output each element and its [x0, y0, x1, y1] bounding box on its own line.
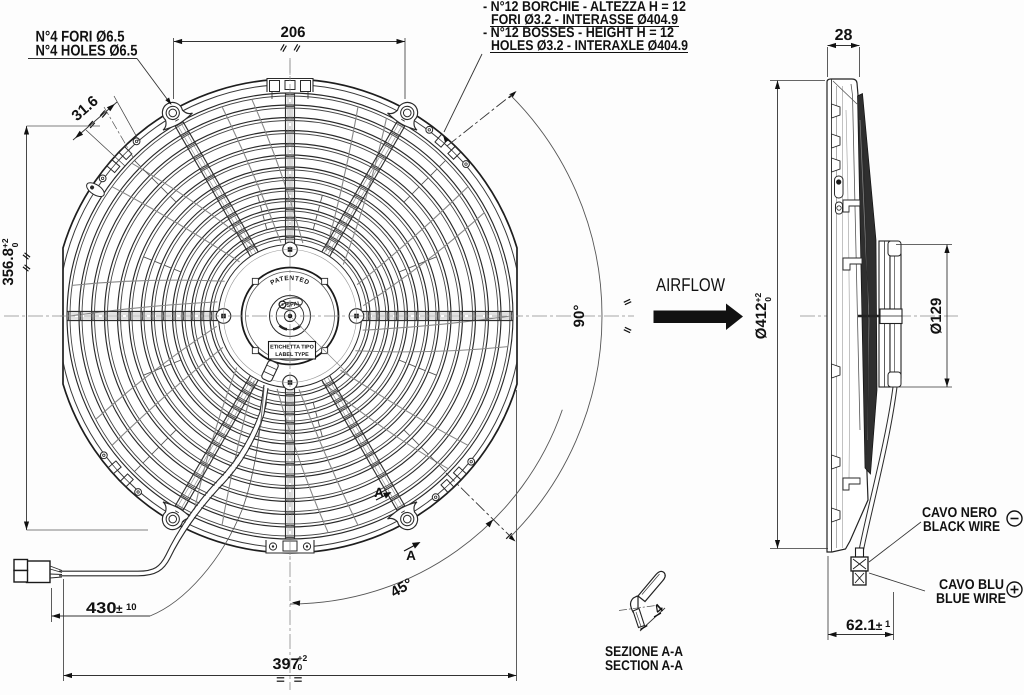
svg-text:206: 206 — [280, 24, 305, 41]
svg-text:BLACK WIRE: BLACK WIRE — [923, 519, 1000, 535]
svg-text:90°: 90° — [571, 305, 588, 328]
svg-text:AIRFLOW: AIRFLOW — [656, 274, 725, 295]
svg-text:LABEL TYPE: LABEL TYPE — [275, 352, 309, 358]
svg-text:10: 10 — [126, 602, 137, 613]
svg-text:1: 1 — [885, 619, 891, 630]
svg-text:0: 0 — [298, 662, 303, 672]
svg-text:BLUE WIRE: BLUE WIRE — [936, 591, 1006, 607]
svg-text:±: ± — [876, 619, 883, 633]
svg-text:A: A — [406, 548, 416, 563]
svg-text:62.1: 62.1 — [846, 617, 876, 634]
svg-text:397: 397 — [273, 656, 300, 673]
svg-text:28: 28 — [835, 27, 853, 44]
svg-text:N°4 HOLES Ø6.5: N°4 HOLES Ø6.5 — [36, 43, 138, 60]
svg-text:HOLES Ø3.2 - INTERAXLE Ø404.9: HOLES Ø3.2 - INTERAXLE Ø404.9 — [491, 38, 688, 54]
svg-text:Ø129: Ø129 — [928, 298, 945, 335]
svg-text:±: ± — [116, 602, 123, 616]
svg-text:430: 430 — [86, 600, 117, 617]
svg-text:A: A — [374, 485, 384, 500]
svg-text:SECTION A-A: SECTION A-A — [605, 657, 683, 673]
svg-text:ETICHETTA TIPO: ETICHETTA TIPO — [270, 345, 314, 351]
